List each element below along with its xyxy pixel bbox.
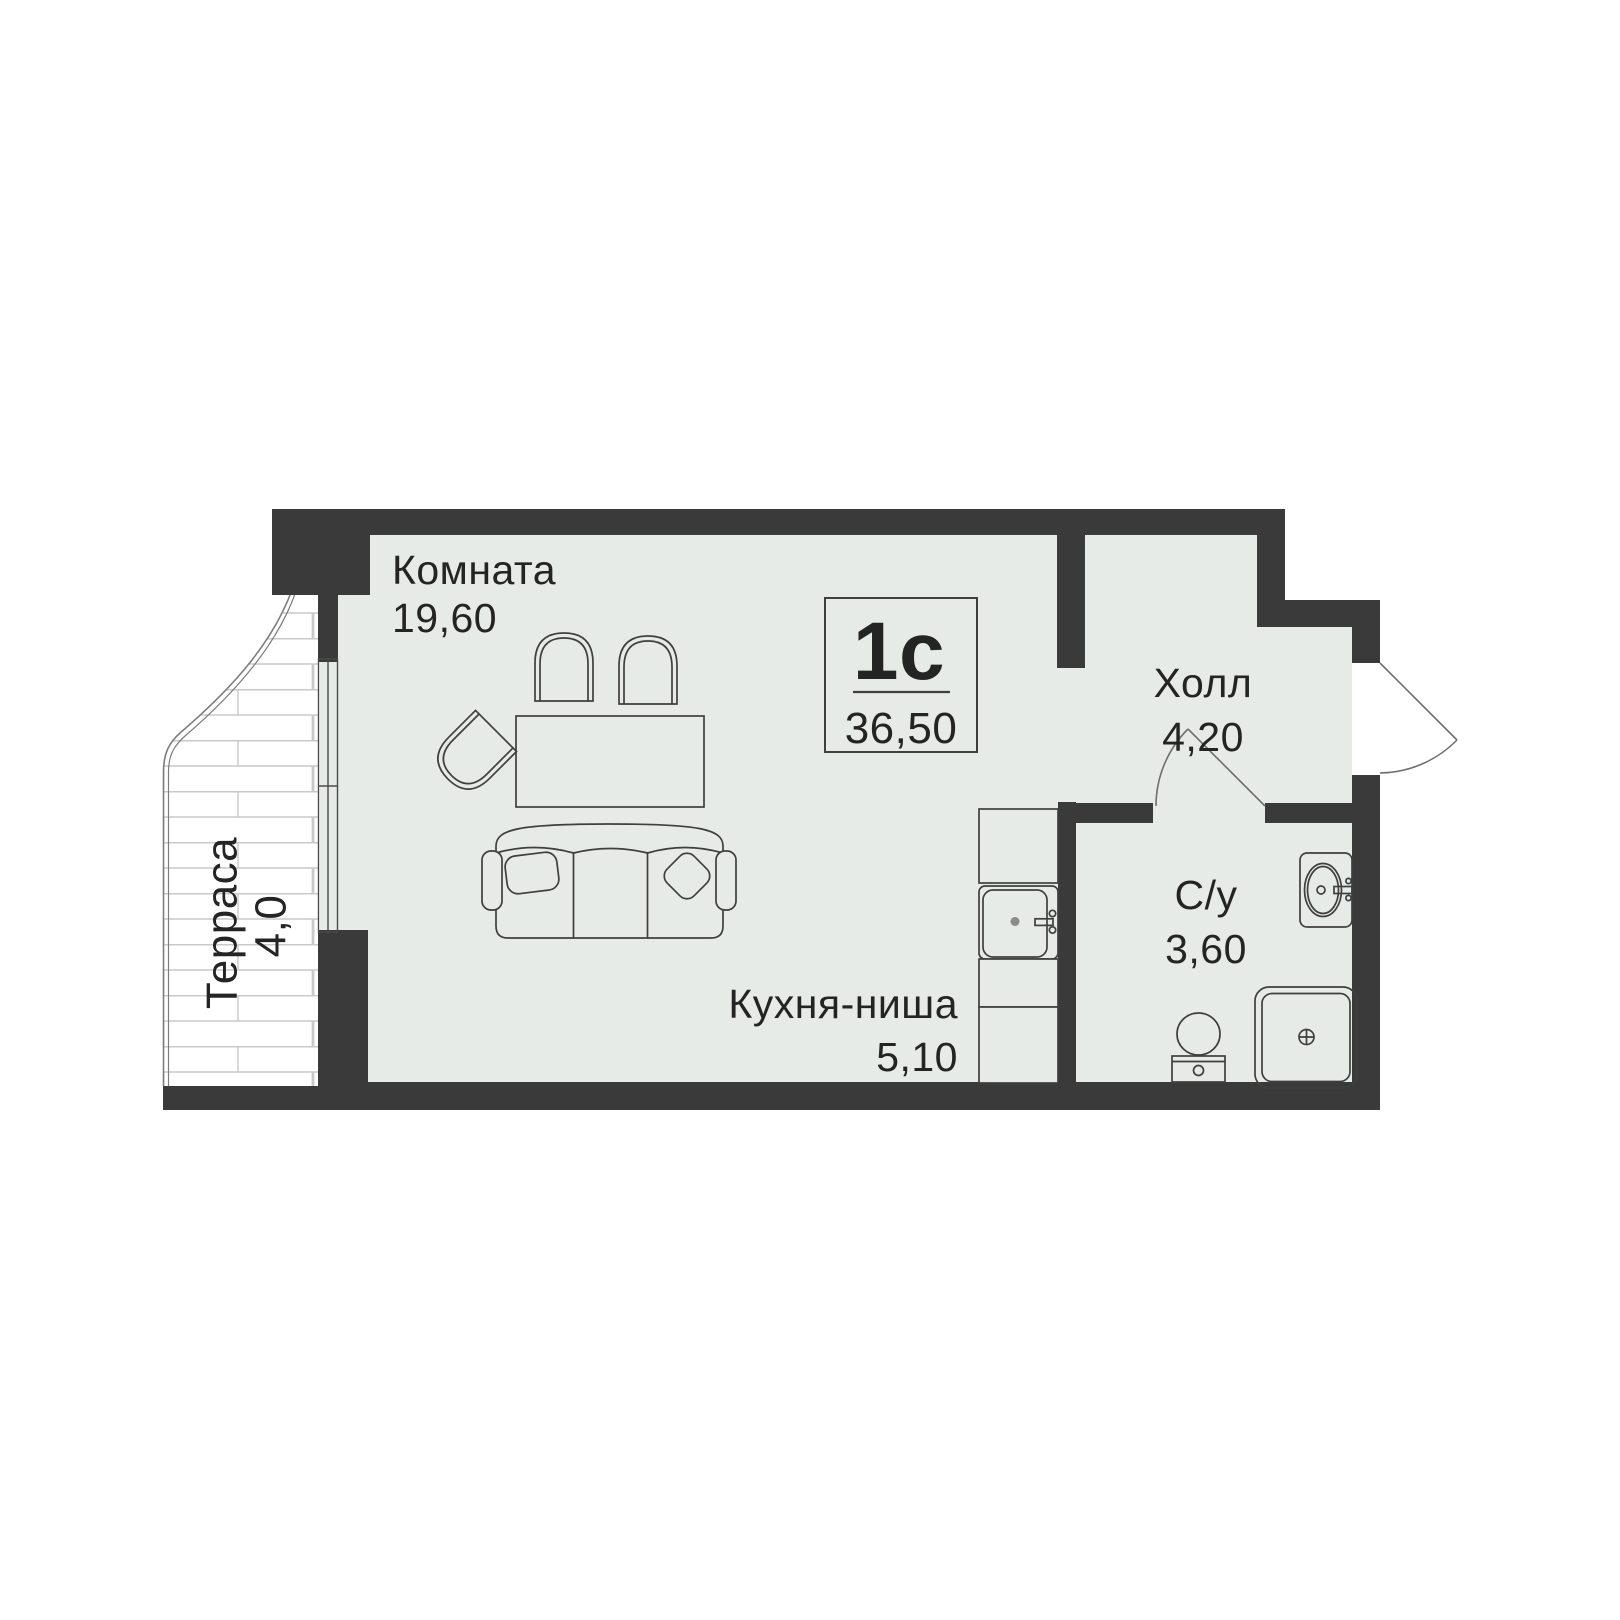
wall-terrace-bottom	[163, 1086, 320, 1110]
sofa-armrest	[482, 851, 502, 910]
unit-badge: 1с 36,50	[825, 598, 977, 753]
sofa-armrest	[716, 851, 736, 910]
kitchen-name-label: Кухня-ниша	[728, 981, 958, 1027]
wall-top	[272, 509, 1285, 535]
kitchen-cabinet	[979, 1007, 1058, 1083]
wall-right-upper	[1352, 627, 1380, 663]
kitchen-counter	[979, 809, 1058, 1083]
unit-area-label: 36,50	[845, 704, 958, 753]
wall-top-left-block	[272, 509, 370, 595]
kitchen-cabinet	[979, 959, 1058, 1007]
terrace-name-label: Терраса	[197, 837, 246, 1009]
sofa-pillow	[504, 851, 560, 895]
floor-plan: 1с 36,50 Комната 19,60 Холл 4,20 Кухня-н…	[0, 0, 1620, 1620]
wall-left-lower-block	[318, 930, 368, 1082]
kitchen-cabinet	[979, 809, 1058, 883]
hall-name-label: Холл	[1154, 660, 1253, 706]
room-area-label: 19,60	[392, 595, 497, 641]
hall-area-label: 4,20	[1162, 714, 1244, 760]
entrance-opening	[1352, 663, 1380, 775]
bathroom-name-label: С/у	[1175, 872, 1238, 918]
wall-topright-block	[1257, 535, 1285, 627]
unit-type-label: 1с	[853, 606, 945, 697]
kitchen-area-label: 5,10	[876, 1034, 958, 1080]
wall-room-hall-partition	[1057, 535, 1085, 668]
room-name-label: Комната	[392, 547, 556, 593]
wall-bathroom-top-right	[1265, 803, 1352, 823]
terrace-area-label: 4,0	[246, 895, 295, 958]
wall-bottom	[318, 1082, 1380, 1110]
bathroom-area-label: 3,60	[1165, 926, 1247, 972]
wall-left-upper	[318, 595, 338, 662]
wall-kitchen-bathroom	[1058, 802, 1076, 1083]
wall-bathroom-top-left	[1076, 803, 1153, 823]
wall-hall-topright	[1285, 600, 1380, 627]
